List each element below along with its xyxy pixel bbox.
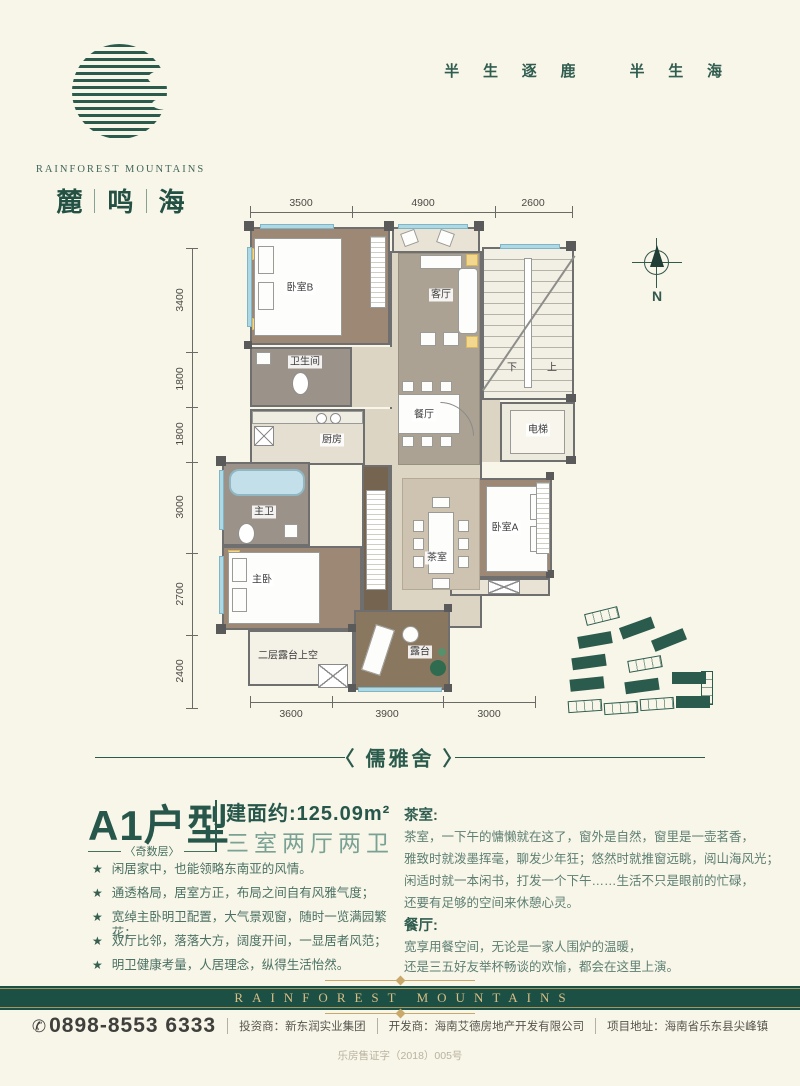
investor-info: 投资商：新东润实业集团 [239,1018,366,1034]
brand-logo-icon [72,44,167,139]
wall-pier [444,684,452,692]
wall-pier [216,456,226,466]
north-label: N [652,288,662,304]
dim-tick [250,206,251,218]
site-building [640,697,675,711]
divider [215,800,217,852]
certificate-number: 乐房售证字（2018）005号 [0,1048,800,1063]
phone-number: ✆ 0898- 8553 6333 [32,1014,216,1038]
plant-icon [438,648,446,656]
dim-tick [495,206,496,218]
room-label-elevator: 电梯 [526,424,550,437]
room-label-kitchen: 厨房 [320,434,344,447]
tea-title: 茶室: [404,804,438,825]
site-building [568,699,603,713]
window [500,244,560,249]
coffee-table [420,332,436,346]
wall-pier [384,221,394,231]
chair [413,538,424,550]
divider [94,189,95,213]
washer [254,426,274,446]
dim-label: 3500 [289,197,312,209]
chair [458,520,469,532]
room-label-living: 客厅 [429,289,453,302]
wall-pier [546,472,554,480]
tea-line: 还要有足够的空间来休憩心灵。 [404,892,579,911]
section-title-text: 儒雅舍 [366,743,435,772]
banner-ornament-diamond [396,976,406,986]
dim-tick [572,206,573,218]
side-table [402,626,419,643]
window [260,224,334,229]
cabinet-accent [466,336,478,348]
window [398,224,468,229]
ac-unit [488,580,520,594]
chair [458,556,469,568]
logo-texture [152,98,182,110]
bracket: 〉 [443,743,466,772]
phone-prefix: 0898- [49,1014,108,1038]
dining-line: 还是三五好友举杯畅谈的欢愉，都会在这里上演。 [404,956,679,975]
wall-pier [566,394,576,402]
star-icon: ★ [92,957,103,973]
sink [256,352,271,365]
tea-table [428,512,454,574]
site-building [571,654,606,671]
coffee-table [443,332,459,346]
hall-floor [365,409,392,465]
divider [377,1018,378,1034]
dim-tick [186,352,198,353]
tea-line: 茶室，一下午的慵懒就在这了，窗外是自然，窗里是一壶茗香， [404,826,754,845]
section-title: 〈 儒雅舍 〉 [335,743,466,772]
sink [284,524,298,538]
footer: ✆ 0898- 8553 6333 投资商：新东润实业集团 开发商：海南艾德房地… [0,1014,800,1038]
dim-label: 2400 [174,659,186,682]
line [88,851,121,852]
wall-pier [566,456,576,464]
room-label-terrace-void: 二层露台上空 [256,650,320,663]
pillow [258,246,274,274]
slogan: 半 生 逐 鹿 半 生 海 [444,60,732,81]
wardrobe [536,482,550,554]
dim-label: 3000 [477,708,500,720]
dim-tick [186,708,198,709]
chair [421,381,433,392]
dim-tick [186,407,198,408]
plant-icon [430,660,446,676]
chair [432,578,450,589]
stove-burner [330,413,341,424]
window [219,556,224,614]
brand-char: 鸣 [107,182,133,219]
floor-note: 〈奇数层〉 [88,843,216,859]
chair [402,381,414,392]
brand-name-cn: 麓 鸣 海 [28,182,213,219]
wall-pier [244,221,254,231]
bathtub [229,469,305,496]
wall-pier [216,624,226,634]
site-building [651,628,687,652]
feature-text: 明卫健康考量，人居理念，纵得生活怡然。 [112,957,350,973]
slogan-right: 半 生 海 [629,60,732,81]
stair-down-label: 下 [505,362,519,375]
wall-pier [444,604,452,612]
bracket: 〈 [335,743,358,772]
dim-tick [186,462,198,463]
room-label-tea: 茶室 [425,552,449,565]
site-building [627,655,663,673]
feature-item: ★ 明卫健康考量，人居理念，纵得生活怡然。 [92,957,397,973]
dim-label: 3400 [174,288,186,311]
stove-burner [316,413,327,424]
dim-tick [332,696,333,708]
wardrobe [366,490,386,590]
developer-info: 开发商：海南艾德房地产开发有限公司 [389,1018,585,1034]
dim-label: 2600 [521,197,544,209]
divider [227,1018,228,1034]
dim-label: 3600 [279,708,302,720]
room-label-bedroom-a: 卧室A [490,522,521,535]
site-building [604,701,639,715]
hall-floor [352,347,392,407]
brand-name-en: RAINFOREST MOUNTAINS [28,164,213,175]
wall-pier [244,341,252,349]
pillow [232,558,247,582]
chair [402,436,414,447]
chair [421,436,433,447]
chair [440,436,452,447]
sofa [458,268,478,334]
brand-char: 麓 [56,182,82,219]
feature-item: ★ 闲居家中，也能领略东南亚的风情。 [92,861,397,877]
tea-line: 闲适时就一本闲书，打发一个下午……生活不只是眼前的忙碌， [404,870,754,889]
phone-icon: ✆ [32,1017,46,1037]
brand-char: 海 [159,182,185,219]
wall-pier [474,221,484,231]
star-icon: ★ [92,885,103,901]
divider [595,1018,596,1034]
dining-line: 宽享用餐空间，无论是一家人围炉的温暖， [404,936,642,955]
slogan-left: 半 生 逐 鹿 [444,60,585,81]
compass-north-arrow-icon [650,245,664,267]
chair [440,381,452,392]
dim-tick [535,696,536,708]
room-label-master-bath: 主卫 [252,506,276,519]
poster-page: RAINFOREST MOUNTAINS 麓 鸣 海 半 生 逐 鹿 半 生 海… [0,0,800,1086]
wall-pier [348,684,356,692]
chair [413,556,424,568]
site-building [584,606,620,626]
dim-tick [186,553,198,554]
window [358,687,442,692]
star-icon: ★ [92,861,103,877]
console-table [420,255,462,269]
line [184,851,217,852]
equipment-box [318,664,348,688]
pillow [258,282,274,310]
wardrobe [370,236,386,308]
hall-floor [482,400,500,462]
banner-text: RAINFOREST MOUNTAINS [0,986,800,1010]
feature-text: 闲居家中，也能领略东南亚的风情。 [112,861,312,877]
dim-line-top [250,212,572,213]
dim-label: 2700 [174,582,186,605]
dim-tick [186,635,198,636]
site-building [619,617,655,640]
toilet [292,372,309,395]
wall-pier [348,624,356,632]
site-building [624,678,659,695]
feature-text: 通透格局，居室方正，布局之间自有风雅气度； [112,885,375,901]
kitchen-counter [252,411,363,424]
chair [413,520,424,532]
dim-label: 1800 [174,422,186,445]
logo-texture [148,70,182,86]
dining-title: 餐厅: [404,914,438,935]
feature-text: 双厅比邻，落落大方，阔度开间，一显居者风范； [112,933,387,949]
dim-label: 3900 [375,708,398,720]
dim-tick [250,696,251,708]
dim-label: 3000 [174,495,186,518]
room-label-bathroom: 卫生间 [288,356,322,369]
phone-main: 8553 6333 [108,1014,216,1038]
stair-up-label: 上 [545,362,559,375]
divider [146,189,147,213]
site-building [577,631,613,649]
chair [432,497,450,508]
room-label-terrace: 露台 [408,646,432,659]
wall-pier [566,241,576,251]
dim-tick [352,206,353,218]
section-divider-line [95,757,345,758]
address-info: 项目地址：海南省乐东县尖峰镇 [607,1018,768,1034]
dim-tick [186,248,198,249]
window [219,470,224,530]
dim-tick [443,696,444,708]
room-label-dining: 餐厅 [412,409,436,422]
dim-label: 1800 [174,367,186,390]
star-icon: ★ [92,933,103,949]
feature-item: ★ 双厅比邻，落落大方，阔度开间，一显居者风范； [92,933,397,949]
unit-layout: 三室两厅两卫 [226,824,394,858]
cabinet-accent [466,254,478,266]
room-label-master-bed: 主卧 [250,574,274,587]
site-building [569,676,604,691]
feature-item: ★ 通透格局，居室方正，布局之间自有风雅气度； [92,885,397,901]
dim-label: 4900 [411,197,434,209]
tea-line: 雅致时就泼墨挥毫，聊发少年狂；悠然时就推窗远眺，阅山海风光； [404,848,779,867]
site-building [676,696,710,708]
unit-area: 建面约:125.09m² [226,797,390,826]
toilet [238,523,255,544]
floor-note-text: 〈奇数层〉 [125,843,180,859]
room-label-bedroom-b: 卧室B [285,282,316,295]
pillow [232,588,247,612]
dim-line-bottom [250,702,535,703]
section-divider-line [455,757,705,758]
dim-line-left [192,248,193,708]
chair [458,538,469,550]
